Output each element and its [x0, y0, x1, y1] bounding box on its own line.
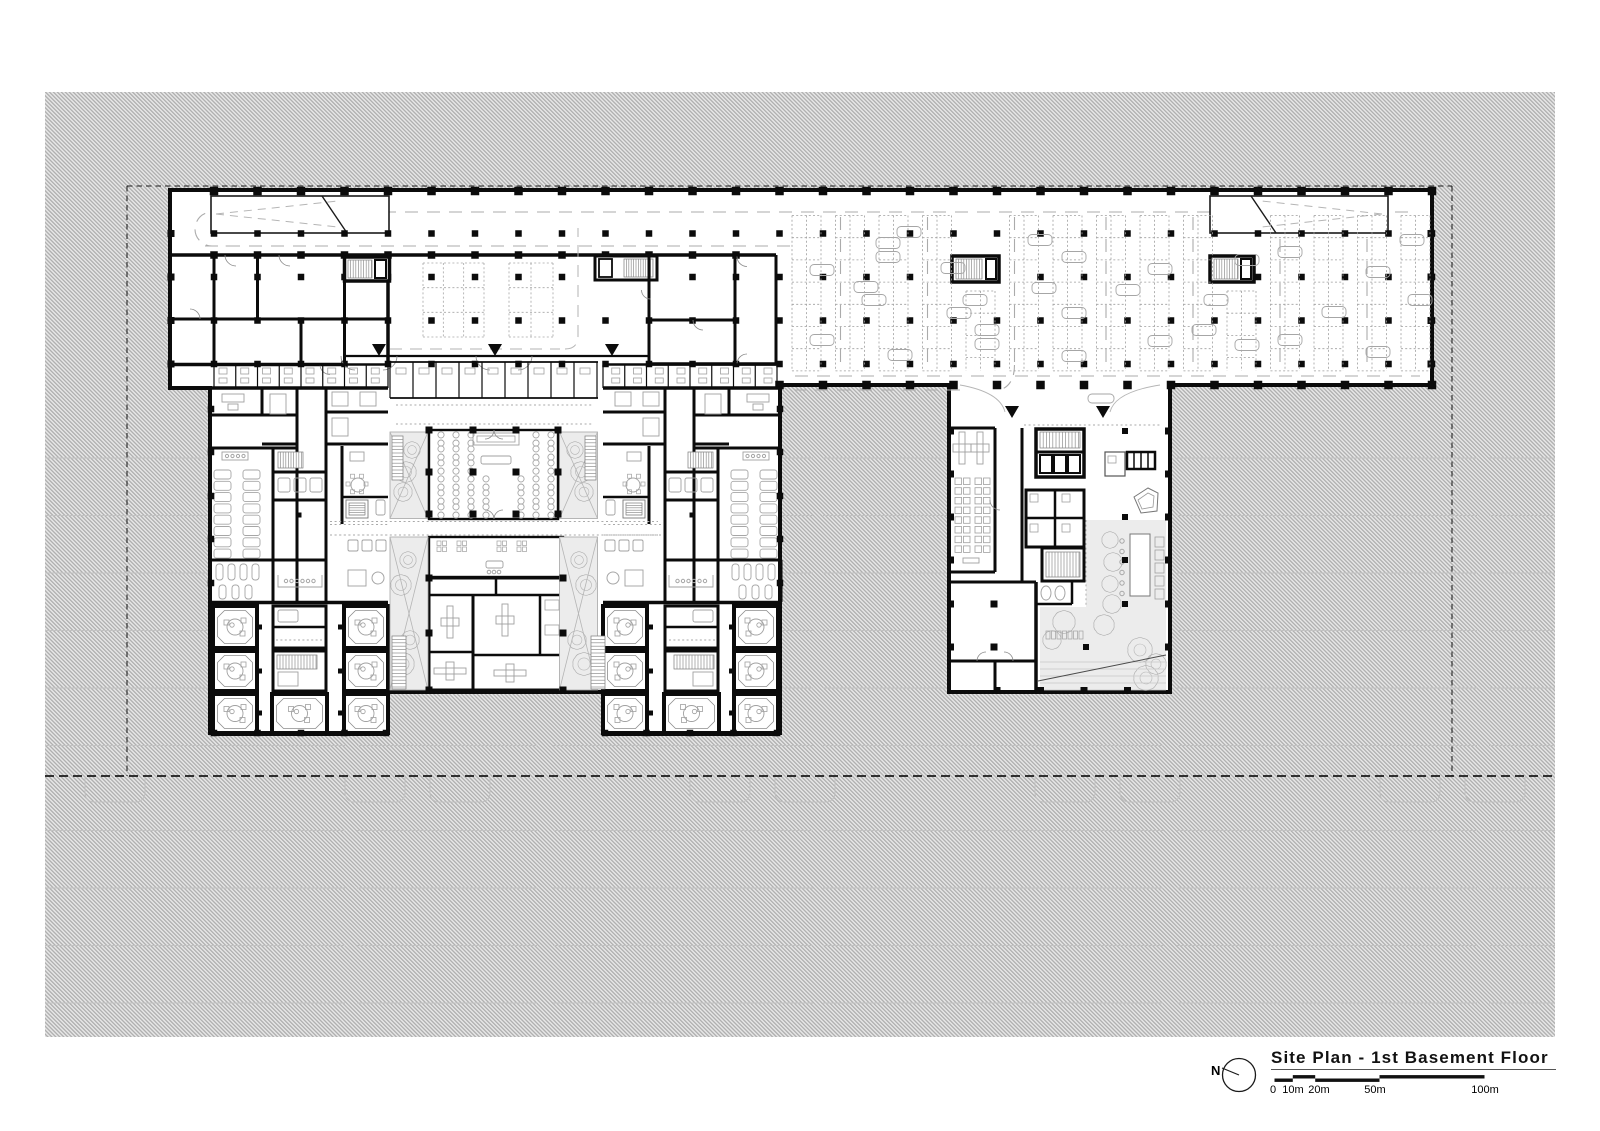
svg-text:Site Plan - 1st Basement Floor: Site Plan - 1st Basement Floor	[1271, 1048, 1549, 1067]
svg-text:0: 0	[1270, 1084, 1276, 1096]
svg-text:20m: 20m	[1308, 1084, 1329, 1096]
svg-text:10m: 10m	[1282, 1084, 1303, 1096]
svg-text:100m: 100m	[1471, 1084, 1499, 1096]
svg-text:N: N	[1211, 1063, 1220, 1078]
svg-text:50m: 50m	[1364, 1084, 1385, 1096]
